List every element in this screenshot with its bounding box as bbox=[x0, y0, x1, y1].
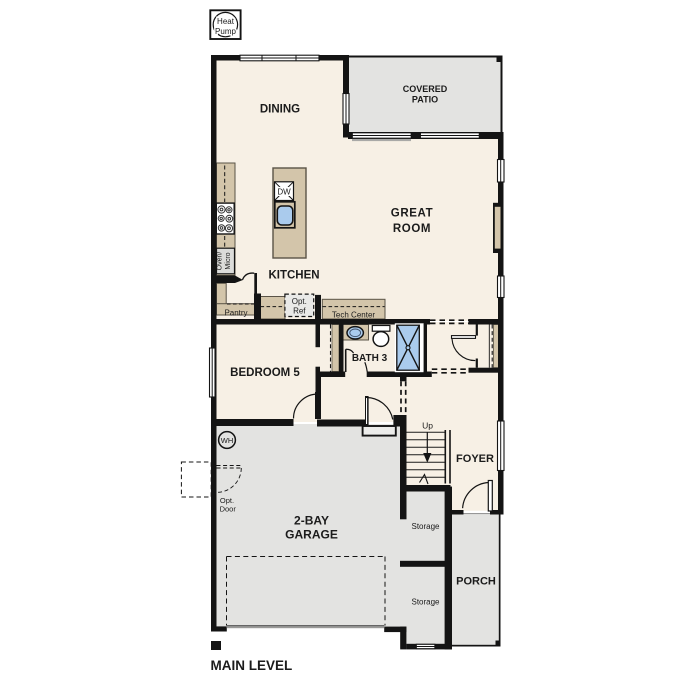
svg-text:PATIO: PATIO bbox=[412, 95, 438, 105]
svg-text:BATH 3: BATH 3 bbox=[352, 353, 388, 364]
svg-text:Heat: Heat bbox=[217, 17, 235, 26]
svg-text:Pantry: Pantry bbox=[224, 309, 247, 318]
svg-text:Tech Center: Tech Center bbox=[332, 311, 375, 320]
svg-text:BEDROOM 5: BEDROOM 5 bbox=[230, 367, 300, 379]
svg-text:Up: Up bbox=[422, 421, 433, 431]
svg-text:DW: DW bbox=[277, 188, 291, 197]
svg-text:COVERED: COVERED bbox=[403, 84, 448, 94]
svg-text:Micro: Micro bbox=[225, 252, 232, 269]
svg-text:WH: WH bbox=[221, 436, 234, 445]
svg-text:PORCH: PORCH bbox=[456, 576, 496, 588]
svg-text:Opt.: Opt. bbox=[292, 297, 307, 306]
svg-text:ROOM: ROOM bbox=[393, 223, 431, 235]
svg-text:GREAT: GREAT bbox=[391, 208, 433, 220]
svg-text:Storage: Storage bbox=[411, 598, 440, 607]
svg-text:Oven/: Oven/ bbox=[217, 252, 224, 271]
svg-text:Ref: Ref bbox=[293, 307, 306, 316]
svg-text:MAIN LEVEL: MAIN LEVEL bbox=[211, 658, 293, 673]
svg-text:GARAGE: GARAGE bbox=[285, 528, 338, 542]
svg-text:Pump: Pump bbox=[215, 27, 236, 36]
svg-text:KITCHEN: KITCHEN bbox=[268, 270, 319, 282]
svg-text:Door: Door bbox=[220, 505, 237, 514]
svg-text:2-BAY: 2-BAY bbox=[294, 514, 329, 528]
svg-text:DINING: DINING bbox=[260, 104, 300, 116]
svg-text:Storage: Storage bbox=[411, 522, 440, 531]
svg-text:FOYER: FOYER bbox=[456, 453, 494, 465]
